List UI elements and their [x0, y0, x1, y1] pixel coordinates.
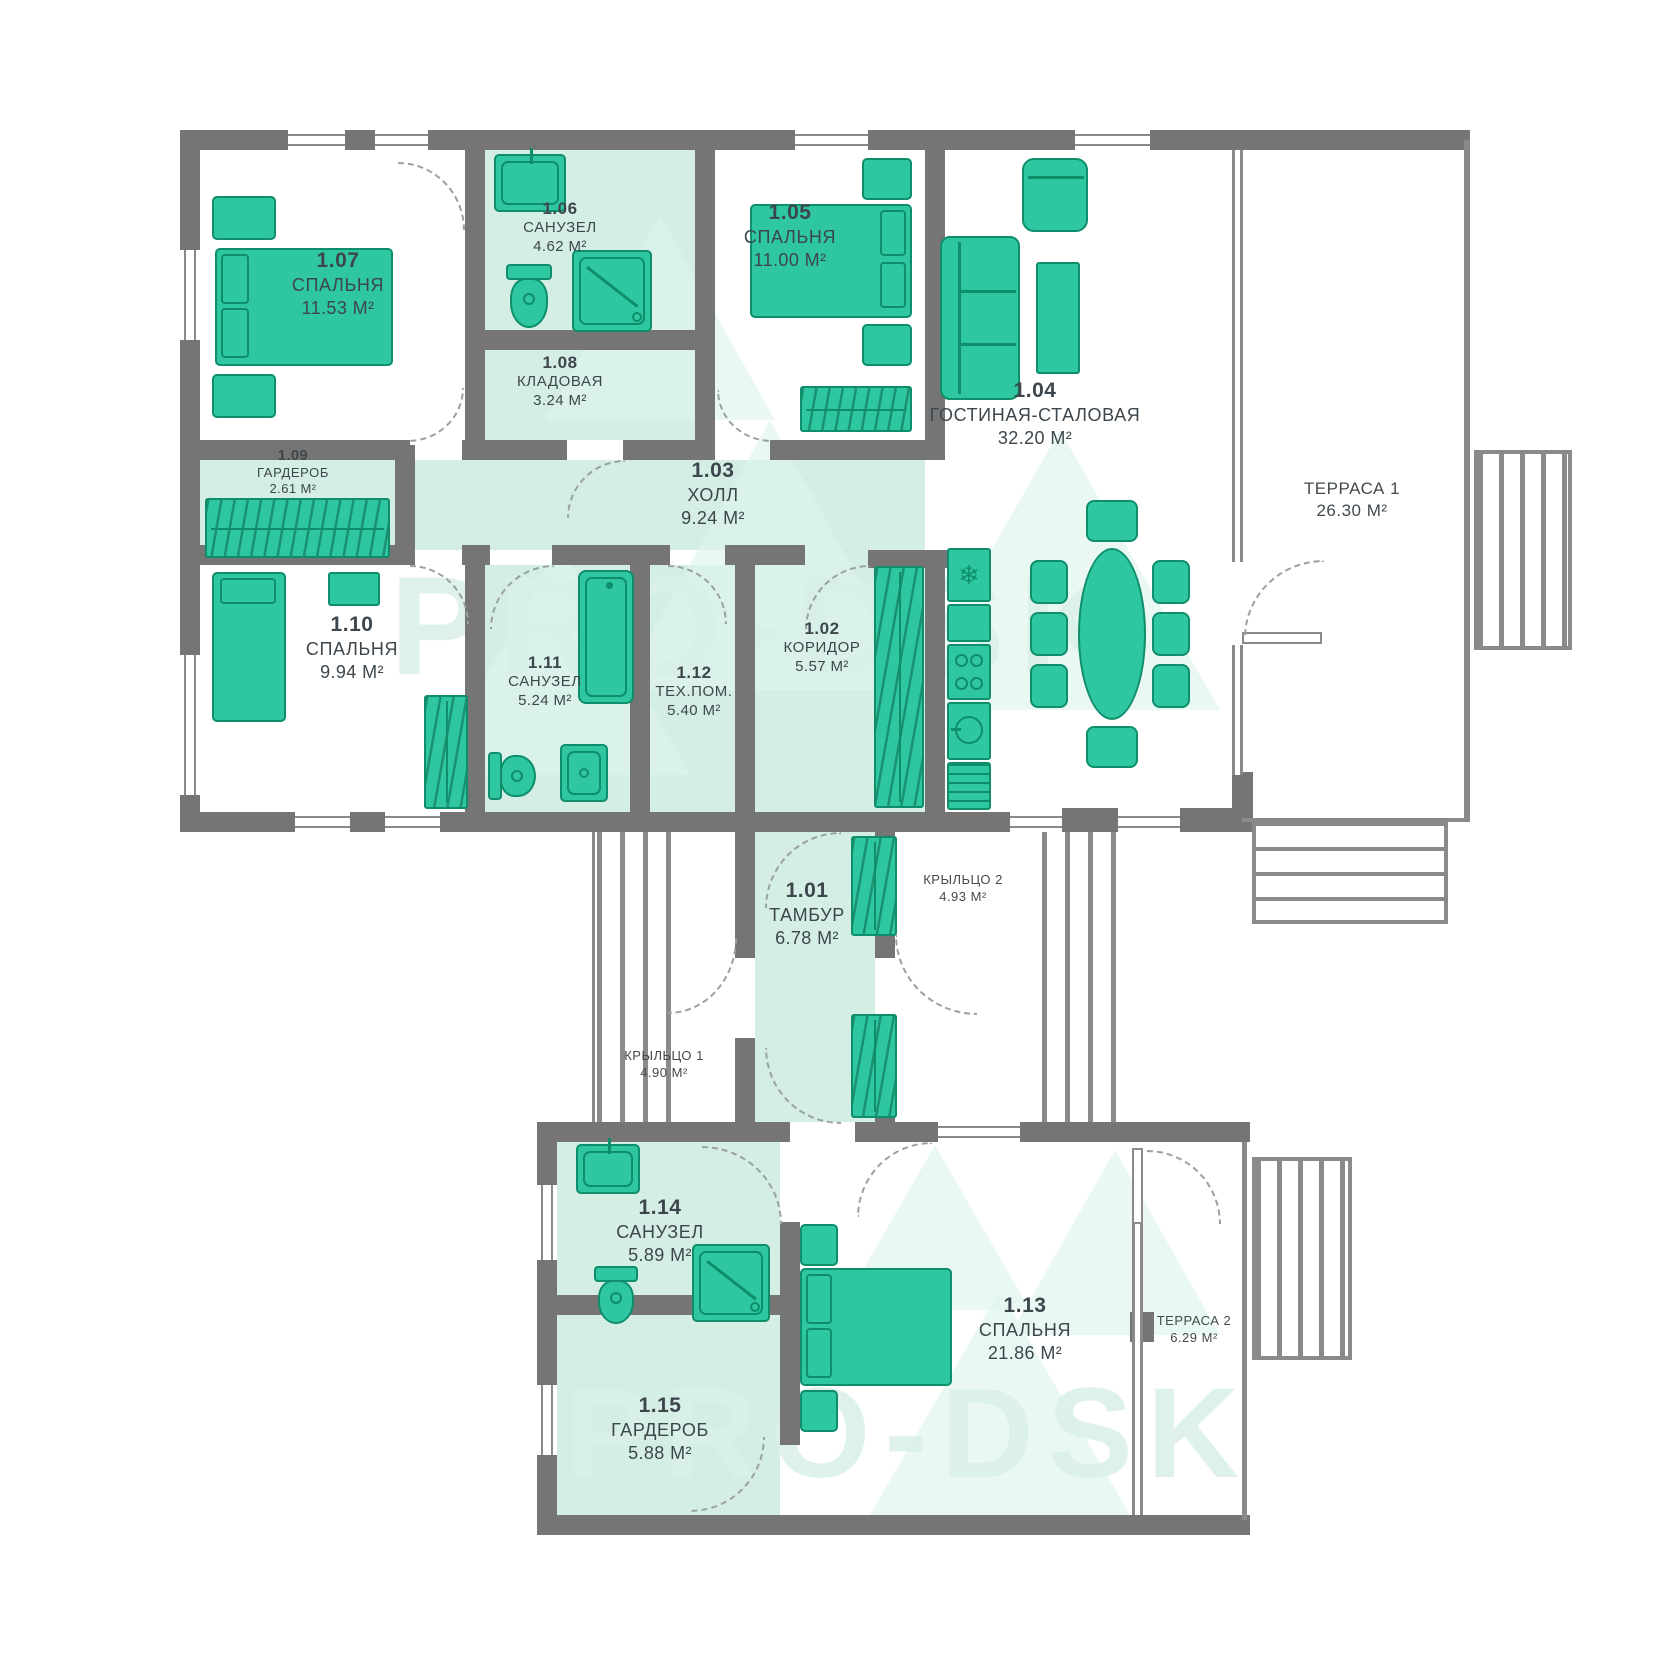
pillow	[880, 262, 906, 308]
window	[537, 1185, 557, 1260]
room-number: 1.08	[517, 352, 603, 373]
wall-segment	[1020, 1122, 1250, 1142]
window	[385, 812, 440, 832]
detail	[970, 654, 983, 667]
glass-wall	[1232, 150, 1243, 562]
room-area: 21.86 М²	[979, 1342, 1071, 1365]
chair-icon	[1030, 664, 1068, 708]
chair-icon	[1152, 664, 1190, 708]
detail	[530, 148, 533, 164]
room-number: 1.10	[306, 612, 398, 638]
wall-segment	[735, 565, 755, 812]
wall-segment	[465, 150, 485, 460]
nightstand-icon	[212, 196, 276, 240]
toilet-icon	[594, 1266, 638, 1324]
wall-segment	[780, 1222, 800, 1295]
detail	[610, 1292, 622, 1304]
desk-icon	[328, 572, 380, 606]
window	[537, 1385, 557, 1455]
wall-segment	[462, 545, 490, 565]
wall-segment	[855, 1122, 938, 1142]
room-area: 5.88 М²	[611, 1442, 709, 1465]
pillow	[806, 1328, 832, 1378]
detail	[960, 343, 1016, 346]
door-leaf	[1132, 1148, 1143, 1224]
room-label-1-05: 1.05 СПАЛЬНЯ 11.00 М²	[744, 200, 836, 271]
terrace-1-label: ТЕРРАСА 1 26.30 М²	[1304, 478, 1400, 522]
detail	[1028, 176, 1084, 179]
room-name: САНУЗЕЛ	[616, 1221, 704, 1244]
wall-segment	[735, 1038, 755, 1122]
room-name: КОРИДОР	[783, 639, 860, 658]
bathtub-icon	[578, 570, 634, 704]
sofa-icon	[940, 236, 1020, 400]
room-label-1-14: 1.14 САНУЗЕЛ 5.89 М²	[616, 1195, 704, 1266]
room-number: 1.13	[979, 1293, 1071, 1319]
room-label-1-06: 1.06 САНУЗЕЛ 4.62 М²	[523, 198, 597, 257]
area-name: ТЕРРАСА 1	[1304, 478, 1400, 500]
shower-icon	[572, 250, 652, 332]
porch-1-label: КРЫЛЬЦО 1 4.90 М²	[624, 1048, 704, 1082]
window	[1075, 130, 1150, 150]
kitchen-cabinet-icon	[947, 604, 991, 642]
nightstand-icon	[862, 324, 912, 366]
door-arc	[1244, 560, 1324, 638]
room-label-1-03: 1.03 ХОЛЛ 9.24 М²	[681, 458, 745, 529]
room-name: КЛАДОВАЯ	[517, 373, 603, 392]
pillow	[221, 254, 249, 304]
detail	[446, 701, 448, 803]
area-value: 6.29 М²	[1157, 1330, 1232, 1347]
wall-segment	[465, 565, 485, 812]
area-name: КРЫЛЬЦО 1	[624, 1048, 704, 1065]
detail	[750, 1302, 760, 1312]
room-label-1-08: 1.08 КЛАДОВАЯ 3.24 М²	[517, 352, 603, 411]
room-name: ТАМБУР	[769, 904, 845, 927]
room-number: 1.11	[508, 652, 582, 673]
room-label-1-12: 1.12 ТЕХ.ПОМ. 5.40 М²	[655, 662, 732, 721]
detail	[585, 577, 627, 697]
room-label-1-10: 1.10 СПАЛЬНЯ 9.94 М²	[306, 612, 398, 683]
room-area: 6.78 М²	[769, 927, 845, 950]
fridge-icon: ❄	[947, 548, 991, 602]
room-label-1-09: 1.09 ГАРДЕРОБ 2.61 М²	[257, 447, 329, 498]
door-arc	[895, 935, 977, 1015]
room-area: 5.57 М²	[783, 658, 860, 677]
glass-wall	[1132, 1222, 1143, 1515]
door-arc	[408, 388, 464, 442]
dishwasher-icon	[947, 762, 991, 810]
window	[180, 250, 200, 340]
room-name: СПАЛЬНЯ	[292, 274, 384, 297]
area-name: ТЕРРАСА 2	[1157, 1313, 1232, 1330]
detail	[583, 1151, 633, 1187]
bed-icon	[212, 572, 286, 722]
room-name: СПАЛЬНЯ	[744, 226, 836, 249]
window	[1118, 812, 1180, 832]
wall-segment	[537, 1515, 1250, 1535]
room-name: САНУЗЕЛ	[523, 219, 597, 238]
detail	[211, 528, 384, 530]
bed-icon	[800, 1268, 952, 1386]
area-value: 26.30 М²	[1304, 500, 1400, 522]
window	[375, 130, 428, 150]
detail	[960, 290, 1016, 293]
floor-plan: PRO-DSK PRO-DSK	[0, 0, 1680, 1680]
room-number: 1.15	[611, 1393, 709, 1419]
chair-icon	[1086, 500, 1138, 542]
room-name: ГОСТИНАЯ-СТАЛОВАЯ	[930, 404, 1141, 427]
nightstand-icon	[800, 1390, 838, 1432]
room-area: 3.24 М²	[517, 392, 603, 411]
wardrobe-icon	[205, 498, 390, 558]
wardrobe-icon	[851, 836, 897, 936]
detail	[874, 1020, 876, 1112]
room-number: 1.14	[616, 1195, 704, 1221]
room-number: 1.07	[292, 248, 384, 274]
room-name: САНУЗЕЛ	[508, 673, 582, 692]
room-label-1-04: 1.04 ГОСТИНАЯ-СТАЛОВАЯ 32.20 М²	[930, 378, 1141, 449]
wall-segment	[537, 1122, 557, 1535]
detail	[608, 1138, 611, 1154]
coffee-table-icon	[1036, 262, 1080, 374]
sink-icon	[560, 744, 608, 802]
sink-icon	[576, 1144, 640, 1194]
wall-segment	[537, 1122, 790, 1142]
room-name: ГАРДЕРОБ	[257, 465, 329, 481]
wall-segment	[462, 440, 567, 460]
room-area: 11.00 М²	[744, 249, 836, 272]
room-number: 1.04	[930, 378, 1141, 404]
room-number: 1.09	[257, 447, 329, 465]
detail	[970, 677, 983, 690]
window	[295, 812, 350, 832]
wall-segment	[695, 150, 715, 460]
detail	[511, 770, 523, 782]
detail	[955, 654, 968, 667]
wardrobe-icon	[800, 386, 912, 432]
wall-segment	[780, 1315, 800, 1445]
wall-segment	[770, 440, 925, 460]
room-number: 1.03	[681, 458, 745, 484]
detail	[874, 842, 876, 930]
dining-table-icon	[1078, 548, 1146, 720]
wardrobe-icon	[424, 695, 468, 809]
wall-segment	[1232, 772, 1253, 816]
area-value: 4.93 М²	[923, 889, 1003, 906]
room-name: СПАЛЬНЯ	[306, 638, 398, 661]
room-label-1-07: 1.07 СПАЛЬНЯ 11.53 М²	[292, 248, 384, 319]
room-name: СПАЛЬНЯ	[979, 1319, 1071, 1342]
wall-segment	[465, 330, 715, 350]
pillow	[880, 210, 906, 256]
door-arc	[668, 938, 737, 1014]
room-name: ГАРДЕРОБ	[611, 1419, 709, 1442]
porch-edge	[592, 832, 595, 1122]
wardrobe-icon	[851, 1014, 897, 1118]
wall-segment	[735, 832, 755, 958]
room-area: 4.62 М²	[523, 238, 597, 257]
room-area: 2.61 М²	[257, 481, 329, 497]
stove-icon	[947, 644, 991, 700]
room-name: ХОЛЛ	[681, 484, 745, 507]
room-number: 1.02	[783, 618, 860, 639]
room-area: 5.89 М²	[616, 1244, 704, 1267]
room-number: 1.01	[769, 878, 845, 904]
room-area: 9.94 М²	[306, 661, 398, 684]
area-value: 4.90 М²	[624, 1065, 704, 1082]
chair-icon	[1030, 560, 1068, 604]
nightstand-icon	[862, 158, 912, 200]
room-label-1-13: 1.13 СПАЛЬНЯ 21.86 М²	[979, 1293, 1071, 1364]
window	[288, 130, 345, 150]
room-area: 5.40 М²	[655, 702, 732, 721]
window	[938, 1122, 1020, 1142]
side-stairs	[1252, 1157, 1352, 1360]
room-label-1-02: 1.02 КОРИДОР 5.57 М²	[783, 618, 860, 677]
area-name: КРЫЛЬЦО 2	[923, 872, 1003, 889]
window	[1010, 812, 1062, 832]
terrace-2-label: ТЕРРАСА 2 6.29 М²	[1157, 1313, 1232, 1347]
wardrobe-icon	[874, 566, 924, 808]
porch-2-label: КРЫЛЬЦО 2 4.93 М²	[923, 872, 1003, 906]
room-area: 32.20 М²	[930, 427, 1141, 450]
door-arc	[717, 390, 772, 442]
room-area: 5.24 М²	[508, 692, 582, 711]
room-1-03-floor	[415, 460, 925, 550]
room-number: 1.06	[523, 198, 597, 219]
terrace-edge	[1242, 1142, 1247, 1520]
chair-icon	[1152, 612, 1190, 656]
detail	[951, 728, 961, 731]
wall-segment	[623, 440, 715, 460]
pillow	[221, 308, 249, 358]
door-arc	[398, 162, 465, 230]
room-label-1-11: 1.11 САНУЗЕЛ 5.24 М²	[508, 652, 582, 711]
room-label-1-15: 1.15 ГАРДЕРОБ 5.88 М²	[611, 1393, 709, 1464]
detail	[523, 293, 535, 305]
room-area: 11.53 М²	[292, 297, 384, 320]
chair-icon	[1030, 612, 1068, 656]
wall-segment	[725, 545, 805, 565]
detail	[955, 677, 968, 690]
room-number: 1.05	[744, 200, 836, 226]
wall-segment	[552, 545, 670, 565]
wall-segment	[925, 568, 945, 812]
detail	[632, 312, 642, 322]
nightstand-icon	[212, 374, 276, 418]
pillow	[220, 578, 276, 604]
detail	[899, 572, 901, 802]
nightstand-icon	[800, 1224, 838, 1266]
porch-railing	[1042, 832, 1134, 1122]
chair-icon	[1152, 560, 1190, 604]
door-arc	[1147, 1150, 1221, 1224]
glass-wall	[1232, 645, 1243, 775]
chair-icon	[1086, 726, 1138, 768]
wall-segment	[1062, 808, 1118, 832]
detail	[806, 409, 906, 411]
room-name: ТЕХ.ПОМ.	[655, 683, 732, 702]
window	[795, 130, 868, 150]
room-number: 1.12	[655, 662, 732, 683]
terrace-edge	[1464, 140, 1470, 822]
door-arc	[857, 1142, 932, 1217]
detail	[606, 582, 613, 589]
terrace-steps	[1252, 822, 1448, 924]
kitchen-sink-icon	[947, 702, 991, 760]
side-stairs	[1474, 450, 1572, 650]
armchair-icon	[1022, 158, 1088, 232]
room-label-1-01: 1.01 ТАМБУР 6.78 М²	[769, 878, 845, 949]
detail	[958, 242, 961, 394]
toilet-icon	[506, 264, 552, 328]
pillow	[806, 1274, 832, 1324]
room-area: 9.24 М²	[681, 507, 745, 530]
window	[180, 655, 200, 795]
toilet-icon	[488, 752, 536, 800]
detail	[579, 768, 589, 778]
